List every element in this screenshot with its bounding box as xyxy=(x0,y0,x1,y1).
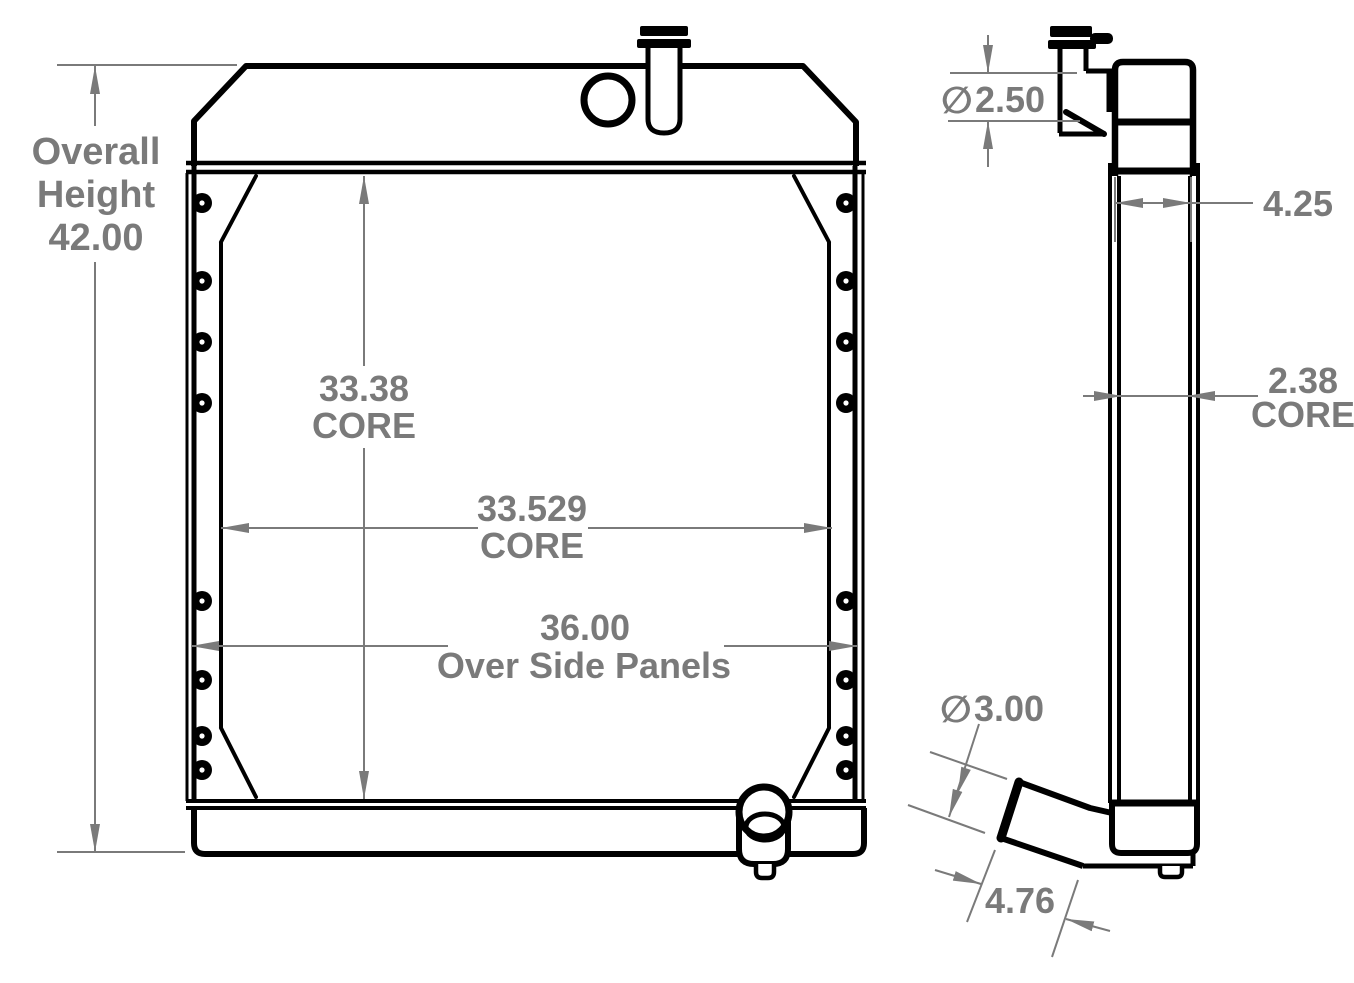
breather-hole xyxy=(584,76,632,124)
side-drain-tab xyxy=(1160,866,1182,877)
overall-height-label-2: Height xyxy=(37,174,156,216)
overall-width-value: 36.00 xyxy=(540,607,630,648)
side-filler-neck xyxy=(1048,26,1113,134)
core-depth-unit: CORE xyxy=(1251,394,1354,435)
front-side-panel-right xyxy=(794,166,863,801)
drawing-canvas: Overall Height 42.00 33.38 CORE 33.529 C… xyxy=(0,0,1354,983)
outlet-diameter-value: 3.00 xyxy=(974,688,1044,729)
dimension-core-height: 33.38 CORE xyxy=(312,176,416,799)
front-outlet xyxy=(739,787,789,878)
overall-width-unit: Over Side Panels xyxy=(437,645,731,686)
side-top-tank xyxy=(1112,62,1196,176)
core-height-value: 33.38 xyxy=(319,368,409,409)
side-view xyxy=(1001,26,1199,877)
outlet-length-value: 4.76 xyxy=(985,880,1055,921)
front-top-tank xyxy=(186,26,866,172)
side-filler-cap xyxy=(1050,26,1092,37)
dimension-core-width: 33.529 CORE xyxy=(221,488,832,566)
core-width-unit: CORE xyxy=(480,525,584,566)
inlet-diameter-symbol: ∅ xyxy=(941,79,973,122)
filler-cap xyxy=(640,26,688,36)
overall-height-value: 42.00 xyxy=(48,217,143,259)
front-side-panel-left xyxy=(187,166,256,801)
dimension-core-depth: 2.38 CORE xyxy=(1083,360,1354,435)
top-tank-depth-value: 4.25 xyxy=(1263,183,1333,224)
outlet-diameter-symbol: ∅ xyxy=(940,688,972,731)
outlet-diameter-extra-arrow xyxy=(953,767,971,795)
core-height-unit: CORE xyxy=(312,405,416,446)
side-core xyxy=(1110,163,1198,803)
side-outlet-pipe xyxy=(1001,782,1112,866)
drain-tab xyxy=(756,864,774,878)
overall-height-label-1: Overall xyxy=(32,131,161,173)
dimension-overall-width: 36.00 Over Side Panels xyxy=(191,607,857,686)
overflow-nipple xyxy=(1090,33,1113,44)
core-width-value: 33.529 xyxy=(477,488,587,529)
radiator-drawing: Overall Height 42.00 33.38 CORE 33.529 C… xyxy=(0,0,1354,983)
dimension-top-tank-depth: 4.25 xyxy=(1115,177,1333,242)
front-view xyxy=(186,26,866,878)
inlet-diameter-value: 2.50 xyxy=(975,79,1045,120)
